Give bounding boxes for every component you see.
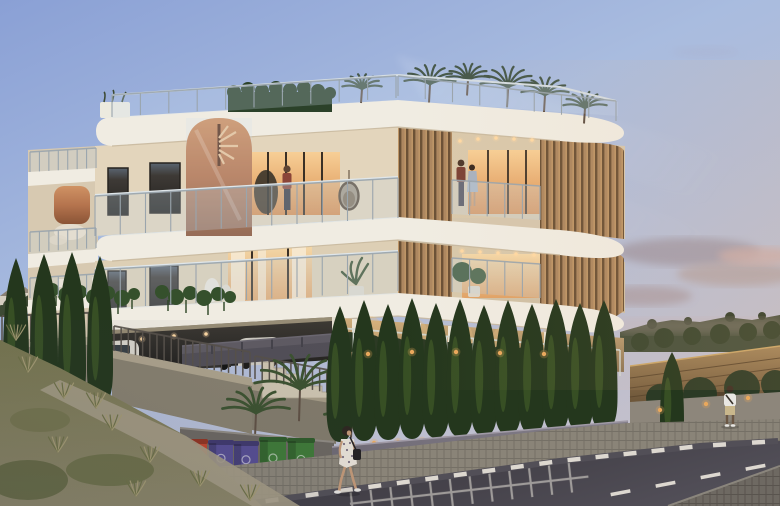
- architectural-render: [0, 0, 780, 506]
- copper-accent-panel: [54, 186, 90, 224]
- light-dot: [746, 396, 750, 400]
- shorts: [725, 406, 735, 415]
- light-dot: [658, 408, 662, 412]
- cypress-rim-light: [379, 341, 387, 417]
- light-dot: [704, 402, 708, 406]
- shoe: [731, 424, 736, 427]
- cloud: [672, 46, 740, 58]
- paint-dash: [713, 442, 726, 447]
- shadow: [721, 425, 739, 429]
- scene-svg: [0, 0, 780, 506]
- light-dot: [366, 352, 370, 356]
- cool-shadow: [0, 320, 360, 506]
- paint-dash: [752, 440, 765, 445]
- shoe: [725, 424, 730, 427]
- warm-dusk-glow: [400, 60, 780, 390]
